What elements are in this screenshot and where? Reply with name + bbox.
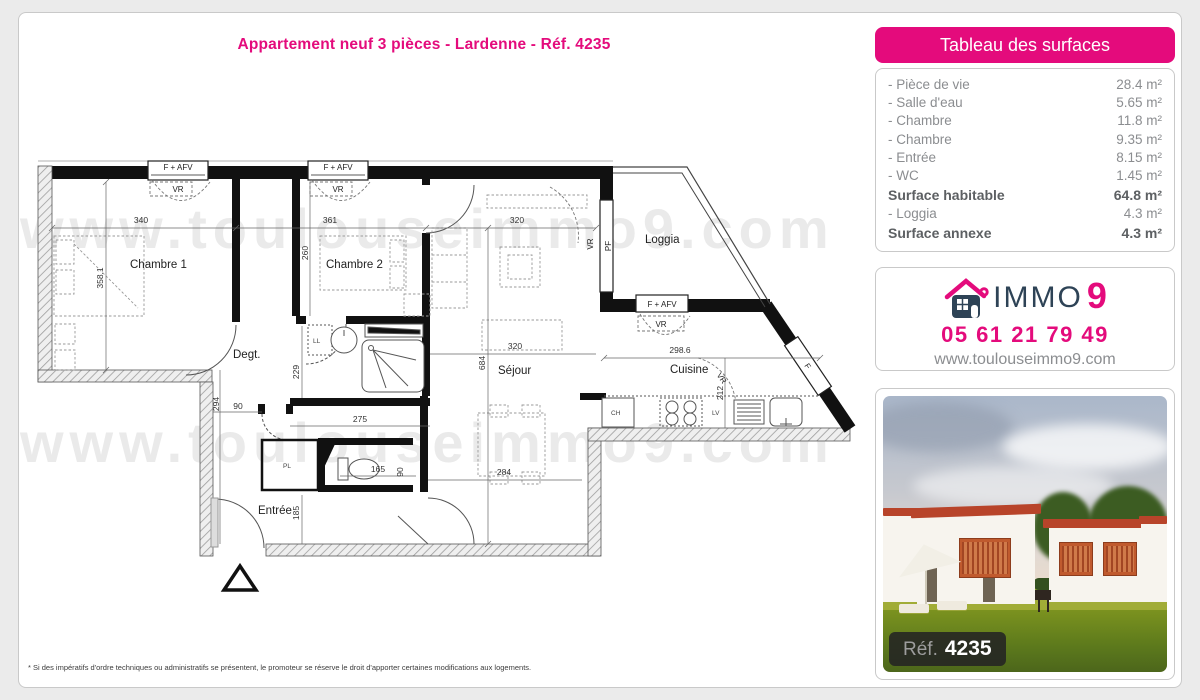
balcony xyxy=(959,538,1011,578)
balcony xyxy=(1103,542,1137,576)
dim-label: 320 xyxy=(508,341,522,351)
balcony xyxy=(1059,542,1093,576)
barbecue xyxy=(1035,590,1051,600)
table-row: - Salle d'eau5.65 m² xyxy=(888,94,1162,112)
legal-footnote: * Si des impératifs d'ordre techniques o… xyxy=(28,663,531,672)
exterior-walls xyxy=(38,161,850,556)
dim-label: 185 xyxy=(291,506,301,520)
dim-label: 358.1 xyxy=(95,267,105,289)
row-label: - Salle d'eau xyxy=(888,94,963,112)
row-value: 1.45 m² xyxy=(1116,167,1162,185)
ref-badge: Réf. 4235 xyxy=(889,632,1006,666)
room-label-loggia: Loggia xyxy=(645,234,680,246)
vr-label: VR xyxy=(332,185,343,194)
room-label-chambre1: Chambre 1 xyxy=(130,259,187,271)
row-value: 28.4 m² xyxy=(1116,76,1162,94)
dim-label: 260 xyxy=(300,246,310,260)
row-label: - Loggia xyxy=(888,205,937,223)
table-row: - Chambre11.8 m² xyxy=(888,112,1162,130)
property-photo-box: Réf. 4235 xyxy=(875,388,1175,680)
dim-label: 90 xyxy=(233,401,243,411)
dim-label: 275 xyxy=(353,414,367,424)
table-row: - Pièce de vie28.4 m² xyxy=(888,76,1162,94)
room-label-entree: Entrée xyxy=(258,505,292,517)
dimension-lines xyxy=(49,179,823,547)
cloud xyxy=(883,402,1013,452)
surface-table-header: Tableau des surfaces xyxy=(875,27,1175,63)
row-label: - Entrée xyxy=(888,149,936,167)
room-label-degagement: Degt. xyxy=(233,349,261,361)
fixture-label-lv: LV xyxy=(712,410,720,417)
dim-label: 284 xyxy=(497,467,511,477)
floorplan: F + AFV F + AFV F + AFV PF F VR VR VR VR… xyxy=(30,158,865,598)
page-title: Appartement neuf 3 pièces - Lardenne - R… xyxy=(18,36,830,54)
barbecue-leg xyxy=(1047,600,1049,612)
agency-phone: 05 61 21 79 49 xyxy=(876,322,1174,348)
dim-label: 361 xyxy=(323,215,337,225)
dim-label: 320 xyxy=(510,215,524,225)
window-label: F + AFV xyxy=(323,163,353,172)
surface-table: - Pièce de vie28.4 m² - Salle d'eau5.65 … xyxy=(875,68,1175,252)
doors xyxy=(186,185,474,548)
room-label-sejour: Séjour xyxy=(498,365,531,377)
window-label: F + AFV xyxy=(163,163,193,172)
roof xyxy=(1043,519,1151,528)
cloud xyxy=(1003,424,1167,470)
fixture-label-ll: LL xyxy=(313,338,321,345)
dim-label: 212 xyxy=(715,386,725,400)
agency-box: IMMO 9 05 61 21 79 49 www.toulouseimmo9.… xyxy=(875,267,1175,371)
table-row-total-habitable: Surface habitable64.8 m² xyxy=(888,185,1162,205)
dim-label: 684 xyxy=(477,356,487,370)
vr-label: VR xyxy=(655,320,666,329)
lounge-chair xyxy=(937,601,967,610)
row-value: 8.15 m² xyxy=(1116,149,1162,167)
table-row: - Entrée8.15 m² xyxy=(888,149,1162,167)
dim-label: 90 xyxy=(395,467,405,477)
row-value: 5.65 m² xyxy=(1116,94,1162,112)
row-label: Surface habitable xyxy=(888,185,1005,205)
brand-text: IMMO xyxy=(993,281,1083,315)
brand-digit: 9 xyxy=(1087,275,1107,317)
fixture-label-pl: PL xyxy=(283,463,291,470)
agency-website: www.toulouseimmo9.com xyxy=(876,351,1174,369)
entrance-triangle xyxy=(224,566,256,590)
vr-label: VR xyxy=(172,185,183,194)
building xyxy=(1141,522,1167,602)
row-value: 4.3 m² xyxy=(1124,205,1162,223)
barbecue-leg xyxy=(1038,600,1040,612)
dim-label: 294 xyxy=(211,397,221,411)
dim-label: 165 xyxy=(371,464,385,474)
fixture-label-ch: CH xyxy=(611,410,621,417)
property-photo: Réf. 4235 xyxy=(883,396,1167,672)
window-label: F + AFV xyxy=(647,300,677,309)
dim-label: 340 xyxy=(134,215,148,225)
umbrella-pole xyxy=(925,568,927,606)
row-label: Surface annexe xyxy=(888,223,992,243)
row-label: - Chambre xyxy=(888,112,952,130)
table-row-total-annexe: Surface annexe4.3 m² xyxy=(888,223,1162,243)
row-label: - WC xyxy=(888,167,919,185)
row-label: - Pièce de vie xyxy=(888,76,970,94)
row-value: 4.3 m² xyxy=(1122,223,1162,243)
lounge-chair xyxy=(899,604,929,613)
agency-logo: IMMO 9 xyxy=(876,276,1174,320)
ref-label: Réf. xyxy=(903,639,938,661)
dim-label: 298.6 xyxy=(669,345,691,355)
window-label-pf: PF xyxy=(604,241,613,251)
row-value: 9.35 m² xyxy=(1116,131,1162,149)
table-row: - Chambre9.35 m² xyxy=(888,131,1162,149)
row-value: 11.8 m² xyxy=(1117,112,1162,130)
house-icon xyxy=(943,276,989,320)
room-label-cuisine: Cuisine xyxy=(670,364,708,376)
row-label: - Chambre xyxy=(888,131,952,149)
table-row: - WC1.45 m² xyxy=(888,167,1162,185)
table-row: - Loggia4.3 m² xyxy=(888,205,1162,223)
row-value: 64.8 m² xyxy=(1114,185,1162,205)
dim-label: 229 xyxy=(291,365,301,379)
roof xyxy=(1139,516,1167,524)
vr-label: VR xyxy=(586,238,595,249)
vr-label: VR xyxy=(715,371,729,385)
ref-value: 4235 xyxy=(945,637,992,661)
room-label-chambre2: Chambre 2 xyxy=(326,259,383,271)
